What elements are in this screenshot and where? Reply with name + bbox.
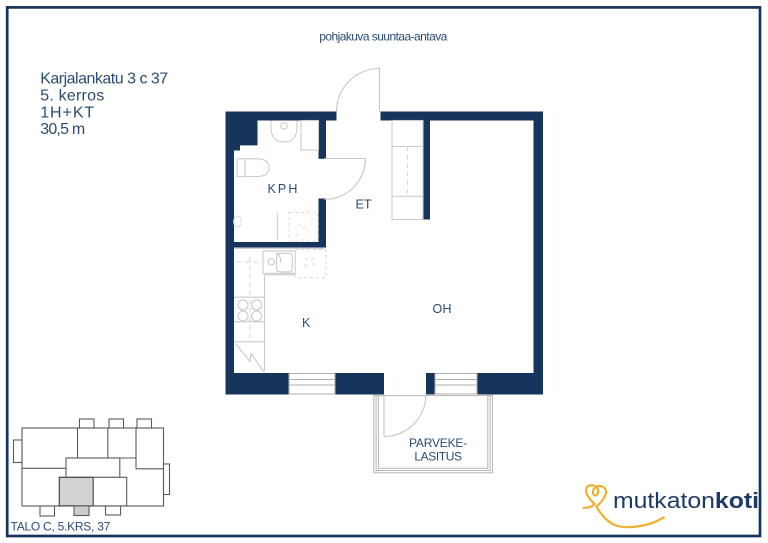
svg-text:PARVEKE-: PARVEKE- [409, 436, 467, 450]
svg-text:K: K [302, 316, 311, 330]
svg-text:30,5 m: 30,5 m [40, 121, 85, 138]
svg-text:ET: ET [356, 197, 372, 211]
svg-text:5. kerros: 5. kerros [40, 88, 104, 105]
svg-text:LASITUS: LASITUS [414, 450, 462, 464]
svg-text:TALO C, 5.KRS, 37: TALO C, 5.KRS, 37 [11, 520, 111, 534]
svg-text:pohjakuva suuntaa-antava: pohjakuva suuntaa-antava [319, 30, 447, 44]
svg-text:mutkatonkoti: mutkatonkoti [613, 488, 759, 513]
svg-text:KPH: KPH [268, 182, 300, 196]
svg-text:Karjalankatu 3 c 37: Karjalankatu 3 c 37 [40, 71, 168, 88]
svg-text:1H+KT: 1H+KT [40, 104, 94, 121]
svg-text:OH: OH [433, 302, 452, 316]
